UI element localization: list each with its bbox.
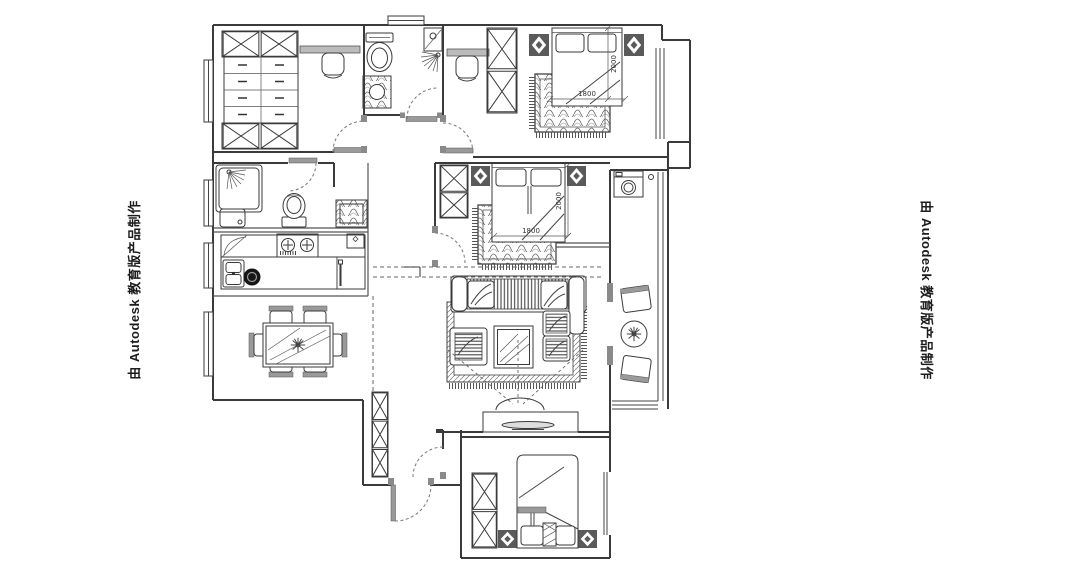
desk-chair-bedroom-icon xyxy=(447,49,489,81)
window-left-closet-icon xyxy=(204,60,213,122)
bedroom-master: 1800 2000 xyxy=(440,162,586,242)
dim-width-label: 1800 xyxy=(578,90,596,98)
nightstand-icon xyxy=(567,166,586,186)
shower-shelf-icon xyxy=(424,28,442,51)
washing-machine-icon xyxy=(614,171,654,197)
drawer-chest-icon xyxy=(224,57,298,123)
kitchen xyxy=(221,234,365,289)
bathtub-shower-icon xyxy=(216,165,262,212)
nightstand-icon xyxy=(578,530,597,548)
counter-corner xyxy=(222,235,247,257)
bathroom-mid xyxy=(216,165,367,227)
door-bedroom-bottom xyxy=(413,447,443,477)
vanity-mid-icon xyxy=(336,200,367,227)
door-closet xyxy=(333,121,364,153)
pot-icon xyxy=(244,269,261,286)
bedroom-bottom xyxy=(472,455,597,548)
balcony-window-east xyxy=(658,172,663,401)
window-left-dining-icon xyxy=(204,312,213,376)
wardrobe-bottom-icon xyxy=(222,123,298,149)
window-left-kitchen-icon xyxy=(204,243,213,288)
closet-room xyxy=(222,31,360,149)
dim-depth-label: 2000 xyxy=(555,192,563,210)
window-top-icon xyxy=(388,16,424,25)
desk-chair-closet-icon xyxy=(300,46,360,78)
shower-spray-icon xyxy=(421,52,440,72)
sink-icon xyxy=(223,260,244,287)
vanity-sink-top-icon xyxy=(363,76,391,108)
nightstand-icon xyxy=(529,34,549,56)
balcony-chair-icon xyxy=(620,355,651,383)
nightstand-icon xyxy=(498,530,517,548)
bathroom-top xyxy=(363,28,442,108)
window-bedroom-bottom xyxy=(604,472,607,535)
nightstand-icon xyxy=(624,34,644,56)
tv-cabinet-icon xyxy=(483,412,578,432)
nightstand-icon xyxy=(471,166,490,186)
toilet-icon xyxy=(366,33,393,72)
door-bedroom-top xyxy=(443,123,473,153)
floorplan-canvas: 由 Autodesk 教育版产品制作 由 Autodesk 教育版产品制作 xyxy=(0,0,1074,576)
wardrobe-bottom-bedroom-icon xyxy=(472,473,497,548)
bed-bottom-icon xyxy=(517,455,578,548)
dining-table-icon xyxy=(263,323,333,367)
bay-window-glass xyxy=(656,48,664,139)
living-room xyxy=(448,276,586,432)
wardrobe-top-icon xyxy=(222,31,298,57)
armchair-left-icon xyxy=(450,328,487,365)
balcony xyxy=(614,171,654,383)
balcony-window-south xyxy=(612,401,658,409)
balcony-plant-table-icon xyxy=(621,321,647,347)
loveseat-right-icon xyxy=(543,311,570,361)
coffee-table-icon xyxy=(494,326,533,368)
bolster-icon xyxy=(543,523,556,546)
wardrobe-master-icon xyxy=(440,165,468,218)
wardrobe-icon xyxy=(487,28,517,113)
kitchen-counter-bottom xyxy=(221,257,365,289)
door-bathroom-top xyxy=(406,88,438,122)
door-bedroom-master xyxy=(435,233,465,263)
window-left-bathroom-icon xyxy=(204,180,213,226)
stove-icon xyxy=(277,234,318,257)
toilet-mid-icon xyxy=(282,194,306,228)
shaft-column-icon xyxy=(372,392,388,477)
floorplan-drawing: 1800 2000 xyxy=(0,0,1074,576)
dim-width-label: 1800 xyxy=(522,227,540,235)
dining-room xyxy=(249,306,347,377)
balcony-chair-icon xyxy=(620,285,651,313)
dim-depth-label: 2000 xyxy=(610,55,618,73)
counter-appliance-icon xyxy=(347,234,364,248)
fridge-icon xyxy=(337,257,343,289)
door-entry xyxy=(391,485,431,521)
door-bathroom-mid xyxy=(288,158,317,191)
